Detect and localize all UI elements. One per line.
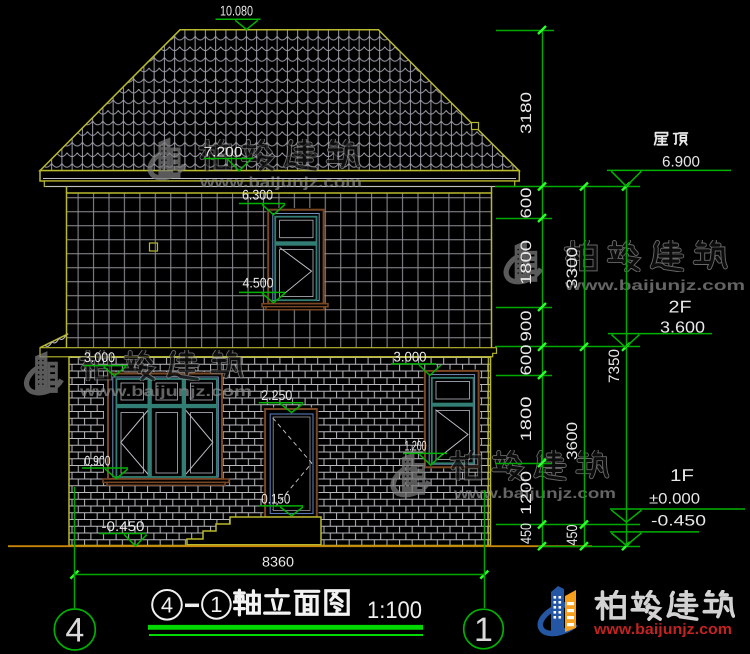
svg-text:3300: 3300	[564, 247, 581, 289]
svg-text:www.baijunjz.com: www.baijunjz.com	[564, 278, 745, 294]
svg-text:-0.450: -0.450	[651, 513, 706, 530]
svg-text:0.150: 0.150	[261, 490, 290, 506]
svg-text:www.baijunjz.com: www.baijunjz.com	[593, 621, 732, 638]
svg-text:7350: 7350	[606, 349, 623, 383]
svg-text:450: 450	[518, 523, 535, 544]
svg-text:2F: 2F	[669, 298, 692, 317]
svg-text:600: 600	[518, 188, 535, 219]
svg-text:-0.450: -0.450	[102, 518, 145, 534]
svg-text:1: 1	[210, 592, 222, 617]
svg-text:4: 4	[161, 593, 173, 618]
svg-text:1: 1	[474, 611, 493, 649]
svg-text:10.080: 10.080	[220, 3, 253, 19]
svg-text:www.baijunjz.com: www.baijunjz.com	[199, 175, 362, 191]
svg-text:900: 900	[518, 311, 535, 342]
svg-text:7.200: 7.200	[204, 144, 243, 160]
svg-text:2.250: 2.250	[261, 387, 292, 403]
svg-text:1800: 1800	[518, 240, 535, 285]
svg-text:1.200: 1.200	[405, 437, 427, 453]
svg-text:6.900: 6.900	[662, 154, 700, 171]
svg-text:±0.000: ±0.000	[649, 490, 700, 507]
svg-text:450: 450	[564, 525, 581, 546]
svg-text:1:100: 1:100	[367, 597, 422, 624]
svg-text:3180: 3180	[518, 92, 535, 134]
svg-text:8360: 8360	[262, 554, 294, 570]
svg-text:1200: 1200	[518, 471, 535, 515]
svg-text:3.000: 3.000	[84, 349, 115, 365]
svg-text:www.baijunjz.com: www.baijunjz.com	[79, 384, 252, 400]
svg-text:3.000: 3.000	[394, 349, 427, 365]
svg-text:3.600: 3.600	[660, 320, 705, 337]
svg-text:1800: 1800	[518, 397, 535, 442]
svg-text:4: 4	[65, 612, 84, 650]
svg-text:600: 600	[518, 345, 535, 376]
svg-text:3600: 3600	[564, 422, 581, 460]
svg-text:4.500: 4.500	[243, 275, 274, 291]
svg-text:6.300: 6.300	[242, 187, 273, 203]
svg-text:1F: 1F	[670, 466, 694, 485]
svg-text:0.900: 0.900	[85, 452, 111, 468]
